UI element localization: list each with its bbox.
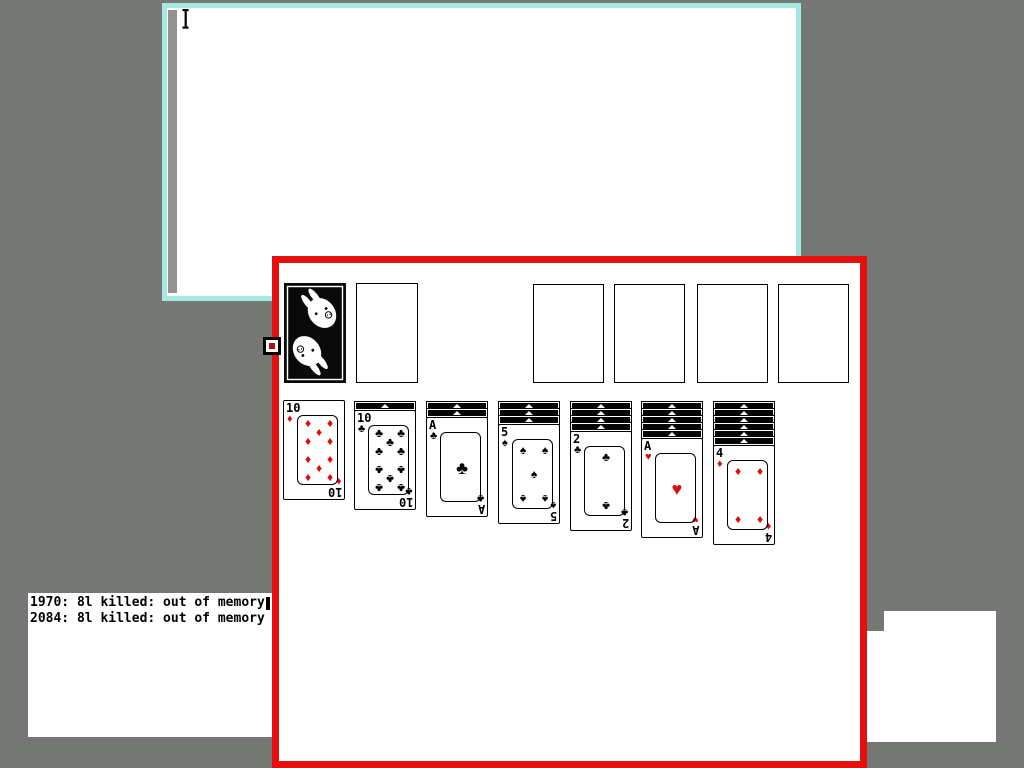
diamond-pip-icon: ♦ [305, 472, 311, 484]
card-A-of-clubs[interactable]: A♣A♣♣ [426, 417, 488, 517]
tableau-pile-5: 2♣2♣♣♣ [570, 400, 632, 538]
card-rank-label: A [478, 503, 485, 515]
club-pip-icon: ♣ [375, 427, 383, 439]
club-pip-icon: ♣ [456, 459, 468, 477]
foundation-slot-1[interactable] [533, 284, 604, 383]
diamond-pip-icon: ♦ [327, 435, 333, 447]
card-back-edge [715, 438, 773, 444]
card-rank-label: 5 [550, 510, 557, 522]
club-pip-icon: ♣ [375, 482, 383, 494]
club-icon: ♣ [430, 431, 437, 442]
terminal-block-cursor [266, 597, 270, 610]
heart-icon: ♥ [645, 452, 652, 463]
diamond-pip-icon: ♦ [757, 465, 763, 477]
foundation-slot-2[interactable] [614, 284, 685, 383]
mouse-cursor-icon [263, 337, 281, 355]
card-10-of-clubs[interactable]: 10♣10♣♣♣♣♣♣♣♣♣♣♣ [354, 410, 416, 510]
solitaire-table: 10♦10♦♦♦♦♦♦♦♦♦♦♦10♣10♣♣♣♣♣♣♣♣♣♣♣A♣A♣♣5♠5… [279, 263, 860, 761]
foundation-slot-3[interactable] [697, 284, 768, 383]
waste-slot-empty[interactable] [356, 283, 418, 383]
diamond-pip-icon: ♦ [735, 514, 741, 526]
diamond-pip-icon: ♦ [327, 472, 333, 484]
spade-icon: ♠ [502, 438, 508, 449]
diamond-pip-icon: ♦ [735, 465, 741, 477]
card-rank-label: A [693, 524, 700, 536]
diamond-pip-icon: ♦ [316, 463, 322, 475]
oom-message-1: 1970: 8l killed: out of memory [30, 595, 265, 610]
card-2-of-clubs[interactable]: 2♣2♣♣♣ [570, 431, 632, 531]
spade-pip-icon: ♠ [520, 493, 526, 505]
spade-pip-icon: ♠ [542, 444, 548, 456]
card-back-edge [356, 403, 414, 409]
oom-message-2: 2084: 8l killed: out of memory [30, 611, 265, 626]
club-pip-icon: ♣ [386, 436, 394, 448]
club-pip-icon: ♣ [375, 445, 383, 457]
card-4-of-diamonds[interactable]: 4♦4♦♦♦♦♦ [713, 445, 775, 545]
club-pip-icon: ♣ [602, 451, 610, 463]
card-A-of-hearts[interactable]: A♥A♥♥ [641, 438, 703, 538]
diamond-pip-icon: ♦ [305, 435, 311, 447]
tableau-pile-4: 5♠5♠♠♠♠♠♠ [498, 400, 560, 531]
card-index-top: 4♦ [716, 447, 723, 470]
bunny-ear-mark-icon [740, 439, 748, 443]
diamond-pip-icon: ♦ [757, 514, 763, 526]
card-10-of-diamonds[interactable]: 10♦10♦♦♦♦♦♦♦♦♦♦♦ [283, 400, 345, 500]
tableau-pile-6: A♥A♥♥ [641, 400, 703, 545]
card-back-edge [428, 410, 486, 416]
card-back-edge [500, 417, 558, 423]
diamond-pip-icon: ♦ [305, 417, 311, 429]
card-back-edge [572, 424, 630, 430]
tableau-pile-7: 4♦4♦♦♦♦♦ [713, 400, 775, 552]
diamond-pip-icon: ♦ [305, 454, 311, 466]
tableau-pile-2: 10♣10♣♣♣♣♣♣♣♣♣♣♣ [354, 400, 416, 517]
scrollbar[interactable] [168, 10, 177, 293]
card-back-edge [643, 431, 701, 437]
terminal-line: 2084: 8l killed: out of memory [30, 611, 272, 627]
diamond-pip-icon: ♦ [327, 454, 333, 466]
card-index-top: A♥ [644, 440, 652, 463]
diamond-icon: ♦ [717, 459, 723, 470]
bunny-card-back-icon [284, 283, 346, 383]
heart-pip-icon: ♥ [672, 480, 683, 498]
club-icon: ♣ [574, 445, 581, 456]
spade-pip-icon: ♠ [542, 493, 548, 505]
foundation-slot-4[interactable] [778, 284, 849, 383]
rio-console-window[interactable]: 1970: 8l killed: out of memory 2084: 8l … [28, 593, 272, 737]
card-index-top: A♣ [429, 419, 437, 442]
spade-pip-icon: ♠ [531, 468, 537, 480]
club-pip-icon: ♣ [397, 464, 405, 476]
tableau-pile-1: 10♦10♦♦♦♦♦♦♦♦♦♦♦ [283, 400, 345, 510]
spade-pip-icon: ♠ [520, 444, 526, 456]
bunny-ear-mark-icon [525, 418, 533, 422]
diamond-pip-icon: ♦ [316, 426, 322, 438]
card-5-of-spades[interactable]: 5♠5♠♠♠♠♠♠ [498, 424, 560, 524]
card-rank-label: 10 [328, 486, 342, 498]
card-rank-label: 10 [399, 496, 413, 508]
club-pip-icon: ♣ [386, 473, 394, 485]
bunny-ear-mark-icon [453, 411, 461, 415]
club-pip-icon: ♣ [375, 464, 383, 476]
diamond-icon: ♦ [287, 414, 293, 425]
club-pip-icon: ♣ [397, 482, 405, 494]
background-window-b[interactable] [866, 631, 996, 742]
club-pip-icon: ♣ [397, 427, 405, 439]
card-rank-label: 4 [765, 531, 772, 543]
terminal-line: 1970: 8l killed: out of memory [30, 595, 272, 611]
bunny-ear-mark-icon [597, 425, 605, 429]
stock-card-back[interactable] [284, 283, 346, 383]
bunny-ear-mark-icon [668, 432, 676, 436]
desktop: 1970: 8l killed: out of memory 2084: 8l … [0, 0, 1024, 768]
bunny-ear-mark-icon [381, 404, 389, 408]
card-index-top: 5♠ [501, 426, 508, 449]
card-rank-label: 2 [622, 517, 629, 529]
club-icon: ♣ [358, 424, 365, 435]
club-pip-icon: ♣ [602, 500, 610, 512]
club-pip-icon: ♣ [397, 445, 405, 457]
card-index-top: 2♣ [573, 433, 581, 456]
diamond-pip-icon: ♦ [327, 417, 333, 429]
tableau-pile-3: A♣A♣♣ [426, 400, 488, 524]
solitaire-window[interactable]: 10♦10♦♦♦♦♦♦♦♦♦♦♦10♣10♣♣♣♣♣♣♣♣♣♣♣A♣A♣♣5♠5… [272, 256, 867, 768]
text-cursor-ibeam-icon [182, 9, 190, 29]
